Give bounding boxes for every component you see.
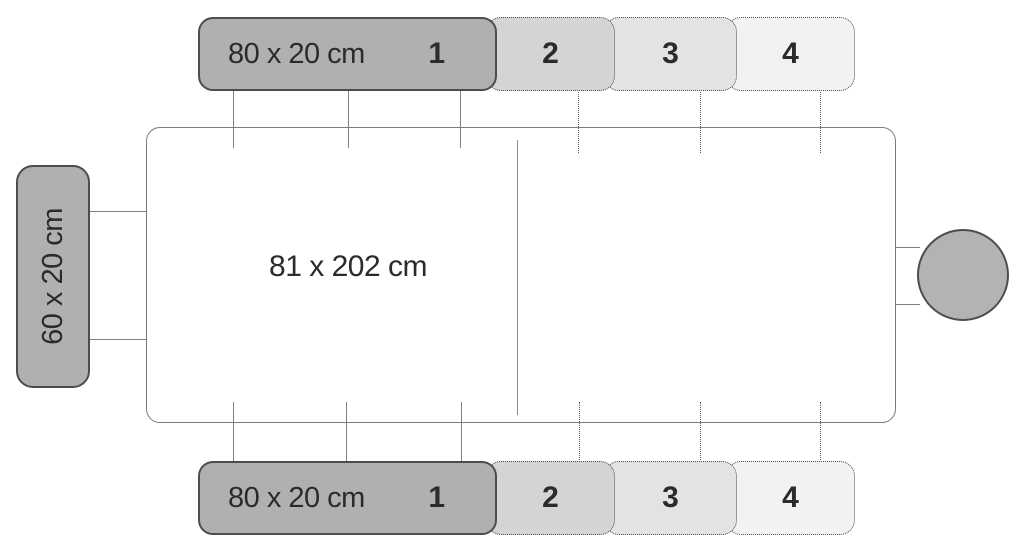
bottom-connector-line [233,402,234,462]
top-extension-segment-2-number: 2 [542,37,559,71]
bottom-extension-segment-4-number: 4 [782,481,799,515]
bottom-dotted-connector-line [820,402,821,462]
bottom-extension-size-label: 80 x 20 cm [228,482,365,515]
bottom-connector-line [461,402,462,462]
top-connector-line [348,91,349,148]
bottom-extension-segment-2: 2 [486,461,615,535]
bottom-connector-line [346,402,347,462]
extension-diagram: 81 x 202 cm 80 x 20 cm 1 2 3 4 80 x 20 c… [0,0,1024,556]
left-connector-line [90,211,146,212]
top-extension-segment-1: 80 x 20 cm 1 [198,17,497,91]
top-dotted-connector-line [578,92,579,153]
bottom-extension-segment-1: 80 x 20 cm 1 [198,461,497,535]
main-panel: 81 x 202 cm [146,127,896,423]
top-extension-segment-4: 4 [726,17,855,91]
bottom-extension-segment-3: 3 [604,461,737,535]
top-connector-line [233,91,234,148]
side-extension-size-label: 60 x 20 cm [37,208,70,345]
bottom-extension-segment-3-number: 3 [662,481,679,515]
bottom-extension-segment-1-number: 1 [428,481,445,515]
top-extension-segment-1-number: 1 [428,37,445,71]
top-dotted-connector-line [820,92,821,153]
bottom-dotted-connector-line [579,402,580,462]
bottom-extension-segment-4: 4 [726,461,855,535]
round-attachment-circle [917,229,1009,321]
bottom-extension-segment-2-number: 2 [542,481,559,515]
top-extension-segment-4-number: 4 [782,37,799,71]
top-extension-segment-3: 3 [604,17,737,91]
side-extension: 60 x 20 cm [16,165,90,388]
main-panel-size-label: 81 x 202 cm [223,250,473,284]
right-connector-line [896,304,920,305]
panel-divider-line [517,140,518,415]
left-connector-line [90,339,146,340]
top-extension-segment-3-number: 3 [662,37,679,71]
right-connector-line [896,247,920,248]
top-connector-line [460,91,461,148]
top-extension-size-label: 80 x 20 cm [228,38,365,71]
bottom-dotted-connector-line [700,402,701,462]
top-dotted-connector-line [700,92,701,153]
top-extension-segment-2: 2 [486,17,615,91]
